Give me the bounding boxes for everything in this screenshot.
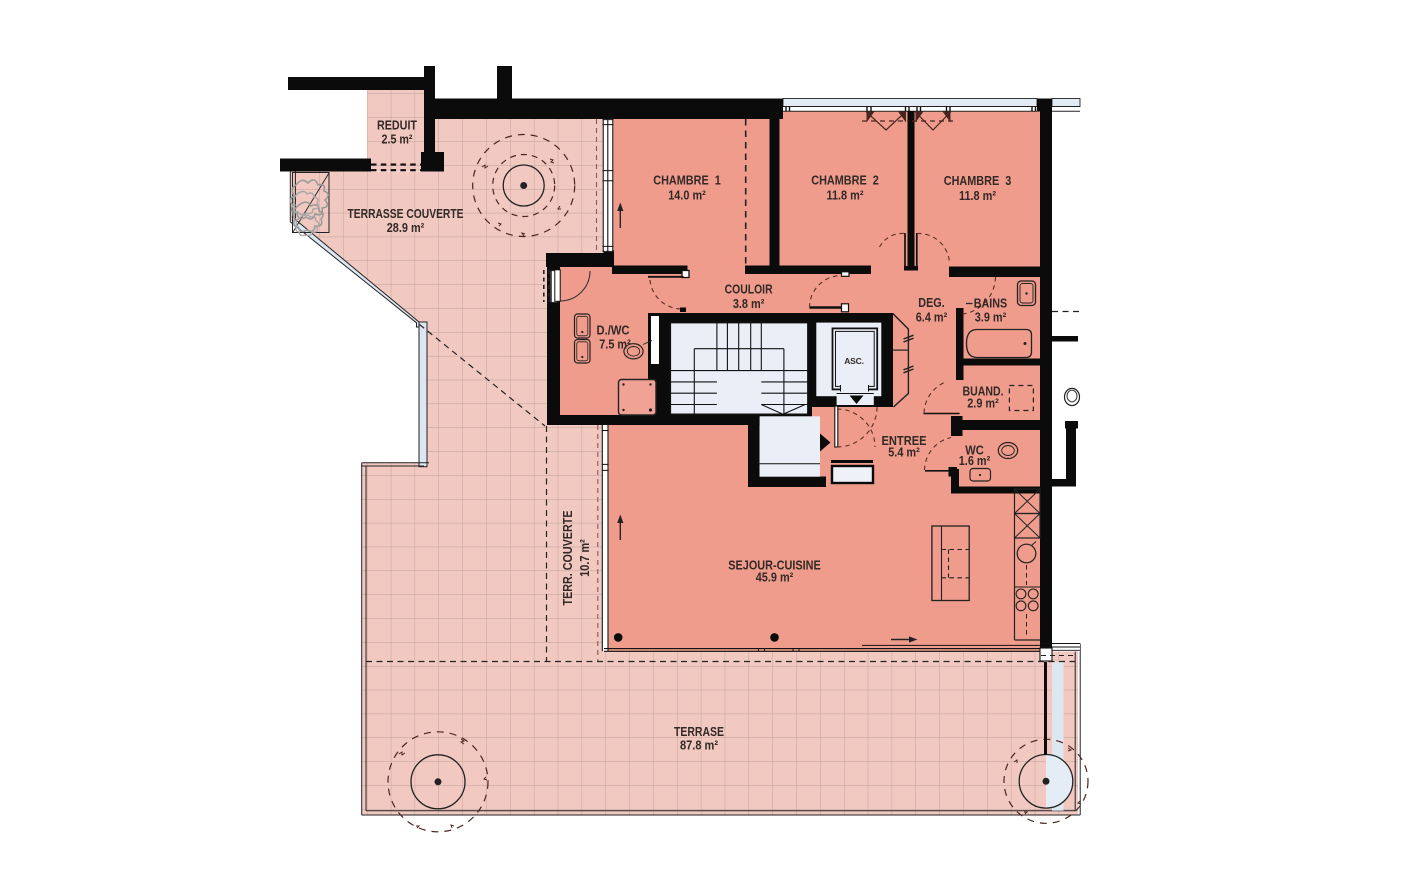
svg-text:REDUIT: REDUIT [377, 118, 417, 133]
svg-text:CHAMBRE 2: CHAMBRE 2 [811, 173, 879, 188]
svg-text:6.4 m²: 6.4 m² [916, 310, 948, 325]
svg-text:28.9 m²: 28.9 m² [387, 220, 425, 235]
svg-text:CHAMBRE 3: CHAMBRE 3 [944, 173, 1012, 188]
svg-text:ASC.: ASC. [844, 356, 864, 366]
svg-text:D./WC: D./WC [597, 323, 630, 338]
svg-text:11.8 m²: 11.8 m² [827, 188, 864, 203]
svg-text:45.9 m²: 45.9 m² [756, 570, 794, 585]
svg-text:11.8 m²: 11.8 m² [959, 188, 996, 203]
svg-text:3.8 m²: 3.8 m² [733, 296, 765, 311]
svg-text:10.7 m²: 10.7 m² [577, 539, 592, 577]
svg-text:TERR. COUVERTE: TERR. COUVERTE [560, 510, 575, 605]
svg-text:2.5 m²: 2.5 m² [382, 132, 413, 147]
svg-text:TERRASSE COUVERTE: TERRASSE COUVERTE [348, 206, 464, 221]
svg-text:DEG.: DEG. [918, 295, 945, 310]
svg-text:5.4 m²: 5.4 m² [888, 445, 920, 460]
svg-text:COULOIR: COULOIR [725, 282, 773, 297]
svg-text:87.8 m²: 87.8 m² [680, 738, 718, 753]
svg-text:7.5 m²: 7.5 m² [599, 337, 631, 352]
svg-text:BAINS: BAINS [974, 296, 1008, 311]
svg-text:3.9 m²: 3.9 m² [975, 310, 1007, 325]
svg-text:1.6 m²: 1.6 m² [959, 453, 991, 468]
svg-text:CHAMBRE 1: CHAMBRE 1 [653, 173, 721, 188]
svg-text:2.9 m²: 2.9 m² [967, 396, 999, 411]
svg-text:14.0 m²: 14.0 m² [668, 188, 706, 203]
